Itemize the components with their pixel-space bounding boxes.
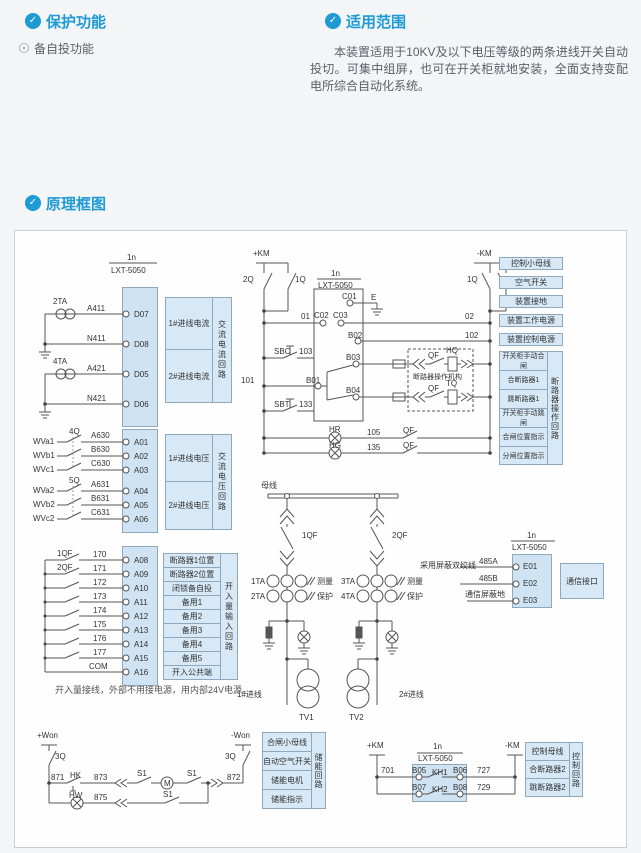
terminal-label: B08 bbox=[453, 783, 467, 792]
wire-label: 135 bbox=[367, 443, 380, 452]
device-model: LXT-5050 bbox=[418, 754, 453, 763]
terminal-label: C03 bbox=[333, 311, 348, 320]
annotation-box: 备用3 bbox=[163, 623, 221, 638]
annotation-box: 自动空气开关 bbox=[262, 751, 312, 771]
breaker-label-2qf: 2QF bbox=[392, 531, 408, 540]
terminal-label: A09 bbox=[134, 570, 148, 579]
wire-label: 701 bbox=[381, 766, 394, 775]
wire-label: 133 bbox=[299, 400, 312, 409]
switch-label: 1Q bbox=[295, 275, 306, 284]
annotation-box: 开关柜手动合闸 bbox=[499, 351, 548, 371]
annotation-box: 储能指示 bbox=[262, 789, 312, 809]
terminal-label: A01 bbox=[134, 438, 148, 447]
annotation-box: 跳断路器1 bbox=[499, 389, 548, 409]
twisted-pair-note: 采用屏蔽双绞线 bbox=[420, 561, 476, 570]
schematic-panel: 1n LXT-5050 2TA 4TA A411 N411 A421 N421 … bbox=[14, 230, 627, 848]
annotation-box: 2#进线电流 bbox=[165, 349, 213, 403]
bus-label-pos-won: +Won bbox=[37, 731, 58, 740]
wire-label: 727 bbox=[477, 766, 490, 775]
motor-label: M bbox=[164, 779, 171, 788]
terminal-label: E03 bbox=[523, 596, 537, 605]
input-label: WVc2 bbox=[33, 514, 54, 523]
wire-label: 173 bbox=[93, 592, 106, 601]
contact-label-qf: QF bbox=[428, 351, 439, 360]
ct-label: 4TA bbox=[341, 592, 355, 601]
terminal-label: B01 bbox=[306, 376, 320, 385]
device-label-n: 1n bbox=[433, 742, 442, 751]
contact-label-2qf: 2QF bbox=[57, 563, 73, 572]
double-circle-icon bbox=[19, 43, 29, 53]
switch-label-s1: S1 bbox=[187, 769, 197, 778]
annotation-box: 装置接地 bbox=[499, 295, 563, 308]
protection-title: 保护功能 bbox=[46, 11, 106, 32]
wire-label: 174 bbox=[93, 606, 106, 615]
ct-label: 2TA bbox=[251, 592, 265, 601]
wire-label: N421 bbox=[87, 394, 106, 403]
terminal-label: A16 bbox=[134, 668, 148, 677]
annotation-box: 空气开关 bbox=[499, 276, 563, 289]
device-label-n: 1n bbox=[527, 531, 536, 540]
ct-label-2ta: 2TA bbox=[53, 297, 67, 306]
wire-label: B630 bbox=[91, 445, 110, 454]
annotation-box: 储能电机 bbox=[262, 770, 312, 790]
scope-title: 适用范围 bbox=[346, 11, 406, 32]
terminal-label: B05 bbox=[412, 766, 426, 775]
contact-label-kh1: KH1 bbox=[432, 768, 448, 777]
annotation-box: 合断路器1 bbox=[499, 370, 548, 390]
terminal-label: A02 bbox=[134, 452, 148, 461]
wire-label: 105 bbox=[367, 428, 380, 437]
lamp-label-hw: HW bbox=[69, 791, 82, 800]
terminal-label: C01 bbox=[342, 292, 357, 301]
input-label: WVb2 bbox=[33, 500, 55, 509]
wire-label-com: COM bbox=[89, 662, 108, 671]
wire-label: 177 bbox=[93, 648, 106, 657]
bus-label-neg-km: -KM bbox=[477, 249, 492, 258]
annotation-box: 闭锁备自投 bbox=[163, 581, 221, 596]
annotation-box: 断路器2位置 bbox=[163, 567, 221, 582]
wire-label: 729 bbox=[477, 783, 490, 792]
shield-check-icon: ✓ bbox=[25, 195, 41, 211]
comm-interface-box: 通信接口 bbox=[560, 563, 604, 599]
mechanism-label: 断路器操作机构 bbox=[413, 373, 462, 382]
shield-check-icon: ✓ bbox=[325, 13, 341, 29]
diagram-title: 原理框图 bbox=[46, 193, 106, 214]
wire-label: A421 bbox=[87, 364, 106, 373]
wire-label: 101 bbox=[241, 376, 254, 385]
terminal-label: D08 bbox=[134, 340, 149, 349]
annotation-box: 控制小母线 bbox=[499, 257, 563, 270]
wire-label: 175 bbox=[93, 620, 106, 629]
terminal-label: A15 bbox=[134, 654, 148, 663]
annotation-box: 开关柜手动跳闸 bbox=[499, 408, 548, 428]
wire-label: N411 bbox=[87, 334, 106, 343]
switch-label-3q: 3Q bbox=[55, 752, 66, 761]
primary-system-wiring bbox=[263, 494, 405, 709]
wire-label: A631 bbox=[91, 480, 110, 489]
ct-use-label: 保护 bbox=[317, 592, 333, 601]
annotation-box: 2#进线电压 bbox=[165, 481, 213, 530]
annotation-box: 合闸小母线 bbox=[262, 732, 312, 752]
contact-label-qf: QF bbox=[403, 441, 414, 450]
lamp-label-hg: HG bbox=[329, 441, 341, 450]
breaker-label-1qf: 1QF bbox=[302, 531, 318, 540]
input-label: WVc1 bbox=[33, 465, 54, 474]
switch-label-hk: HK bbox=[70, 771, 81, 780]
bus-label-neg-won: -Won bbox=[231, 731, 250, 740]
wire-label: 875 bbox=[94, 793, 107, 802]
annotation-box: 装置控制电源 bbox=[499, 333, 563, 346]
wire-label: 172 bbox=[93, 578, 106, 587]
terminal-label: A03 bbox=[134, 466, 148, 475]
line-label: 1#进线 bbox=[237, 690, 262, 699]
device-label-n: 1n bbox=[127, 253, 136, 262]
ct-label: 1TA bbox=[251, 577, 265, 586]
wire-label: 485A bbox=[479, 557, 498, 566]
terminal-label: B07 bbox=[412, 783, 426, 792]
bus-label-pos-km: +KM bbox=[253, 249, 270, 258]
annotation-box-vertical: 交流电流回路 bbox=[212, 297, 232, 403]
wire-label: C631 bbox=[91, 508, 110, 517]
terminal-label: A05 bbox=[134, 501, 148, 510]
protection-item: 备自投功能 bbox=[34, 40, 94, 57]
wire-label: 485B bbox=[479, 574, 498, 583]
switch-label: 1Q bbox=[467, 275, 478, 284]
terminal-label: A10 bbox=[134, 584, 148, 593]
terminal-label: C02 bbox=[314, 311, 329, 320]
wire-label: 103 bbox=[299, 347, 312, 356]
busbar-label: 母线 bbox=[261, 481, 277, 490]
lamp-label-hr: HR bbox=[329, 425, 341, 434]
terminal-label: B03 bbox=[346, 353, 360, 362]
wire-label: 170 bbox=[93, 550, 106, 559]
terminal-label: A06 bbox=[134, 515, 148, 524]
input-label: WVa2 bbox=[33, 486, 54, 495]
annotation-box: 控制母线 bbox=[525, 742, 570, 761]
ct-use-label: 测量 bbox=[407, 577, 423, 586]
device-model: LXT-5050 bbox=[318, 281, 353, 290]
annotation-box: 备用4 bbox=[163, 637, 221, 652]
wire-label-shield: 通信屏蔽地 bbox=[465, 590, 505, 599]
wire-label: 01 bbox=[301, 312, 310, 321]
terminal-label: B06 bbox=[453, 766, 467, 775]
input-label: WVa1 bbox=[33, 437, 54, 446]
bus-label-neg-km: -KM bbox=[505, 741, 520, 750]
wiring-note: 开入量接线，外部不用接电源，用内部24V电源。 bbox=[55, 686, 251, 695]
ct-label-4ta: 4TA bbox=[53, 357, 67, 366]
annotation-box: 合断路器2 bbox=[525, 760, 570, 779]
contact-label-qf: QF bbox=[428, 384, 439, 393]
annotation-box-vertical: 储能回路 bbox=[311, 732, 326, 809]
ct-use-label: 测量 bbox=[317, 577, 333, 586]
line-label: 2#进线 bbox=[399, 690, 424, 699]
terminal-label: E01 bbox=[523, 562, 537, 571]
annotation-box-vertical: 交流电压回路 bbox=[212, 434, 232, 530]
ct-label: 3TA bbox=[341, 577, 355, 586]
terminal-label: D07 bbox=[134, 310, 149, 319]
wire-label: C630 bbox=[91, 459, 110, 468]
annotation-box: 分闸位置指示 bbox=[499, 446, 548, 465]
terminal-label: D06 bbox=[134, 400, 149, 409]
coil-label-hq: HQ bbox=[446, 346, 458, 355]
switch-label-s1: S1 bbox=[137, 769, 147, 778]
contact-label-kh2: KH2 bbox=[432, 785, 448, 794]
wire-label: 171 bbox=[93, 564, 106, 573]
ct-use-label: 保护 bbox=[407, 592, 423, 601]
annotation-box-vertical: 控制回路 bbox=[569, 742, 583, 797]
wire-label: B631 bbox=[91, 494, 110, 503]
terminal-label: A12 bbox=[134, 612, 148, 621]
button-label-sbc: SBC bbox=[274, 347, 290, 356]
terminal-label: E02 bbox=[523, 579, 537, 588]
bus-label-pos-km: +KM bbox=[367, 741, 384, 750]
switch-label: 2Q bbox=[243, 275, 254, 284]
annotation-box: 备用5 bbox=[163, 651, 221, 666]
shield-check-icon: ✓ bbox=[25, 13, 41, 29]
annotation-box: 开入公共端 bbox=[163, 665, 221, 680]
terminal-label: A04 bbox=[134, 487, 148, 496]
annotation-box: 1#进线电流 bbox=[165, 297, 213, 350]
terminal-label: A13 bbox=[134, 626, 148, 635]
input-label: WVb1 bbox=[33, 451, 55, 460]
wire-label: 176 bbox=[93, 634, 106, 643]
wire-label: 871 bbox=[51, 773, 64, 782]
wire-label: 102 bbox=[465, 331, 478, 340]
wire-label: 872 bbox=[227, 773, 240, 782]
control1-wiring bbox=[256, 263, 506, 459]
switch-label-3q: 3Q bbox=[225, 752, 236, 761]
terminal-label: D05 bbox=[134, 370, 149, 379]
annotation-box-vertical: 断路器操作回路 bbox=[547, 351, 563, 465]
tv-label: TV2 bbox=[349, 713, 364, 722]
annotation-box-vertical: 开入量输入回路 bbox=[220, 553, 238, 680]
scope-body: 本装置适用于10KV及以下电压等级的两条进线开关自动投切。可集中组屏，也可在开关… bbox=[310, 44, 628, 95]
switch-label-5q: 5Q bbox=[69, 476, 80, 485]
terminal-label: B02 bbox=[348, 331, 362, 340]
terminal-label: B04 bbox=[346, 386, 360, 395]
device-model: LXT-5050 bbox=[111, 266, 146, 275]
wire-label: A630 bbox=[91, 431, 110, 440]
wire-label: 873 bbox=[94, 773, 107, 782]
annotation-box: 1#进线电压 bbox=[165, 434, 213, 482]
annotation-box: 备用1 bbox=[163, 595, 221, 610]
annotation-box: 断路器1位置 bbox=[163, 553, 221, 568]
contact-label-1qf: 1QF bbox=[57, 549, 73, 558]
digital-input-wiring bbox=[44, 554, 130, 675]
terminal-label: A08 bbox=[134, 556, 148, 565]
wire-label: A411 bbox=[87, 304, 105, 313]
annotation-box: 合闸位置指示 bbox=[499, 427, 548, 447]
terminal-label: A14 bbox=[134, 640, 148, 649]
annotation-box: 装置工作电源 bbox=[499, 314, 563, 327]
switch-label-4q: 4Q bbox=[69, 427, 80, 436]
wire-label: 02 bbox=[465, 312, 474, 321]
device-model: LXT-5050 bbox=[512, 543, 547, 552]
terminal-label: A11 bbox=[134, 598, 148, 607]
device-label-n: 1n bbox=[331, 269, 340, 278]
contact-label-qf: QF bbox=[403, 426, 414, 435]
ground-label: E bbox=[371, 293, 376, 302]
tv-label: TV1 bbox=[299, 713, 314, 722]
annotation-box: 跳断路器2 bbox=[525, 778, 570, 797]
button-label-sbt: SBT bbox=[274, 400, 290, 409]
switch-label-s1: S1 bbox=[163, 790, 173, 799]
annotation-box: 备用2 bbox=[163, 609, 221, 624]
